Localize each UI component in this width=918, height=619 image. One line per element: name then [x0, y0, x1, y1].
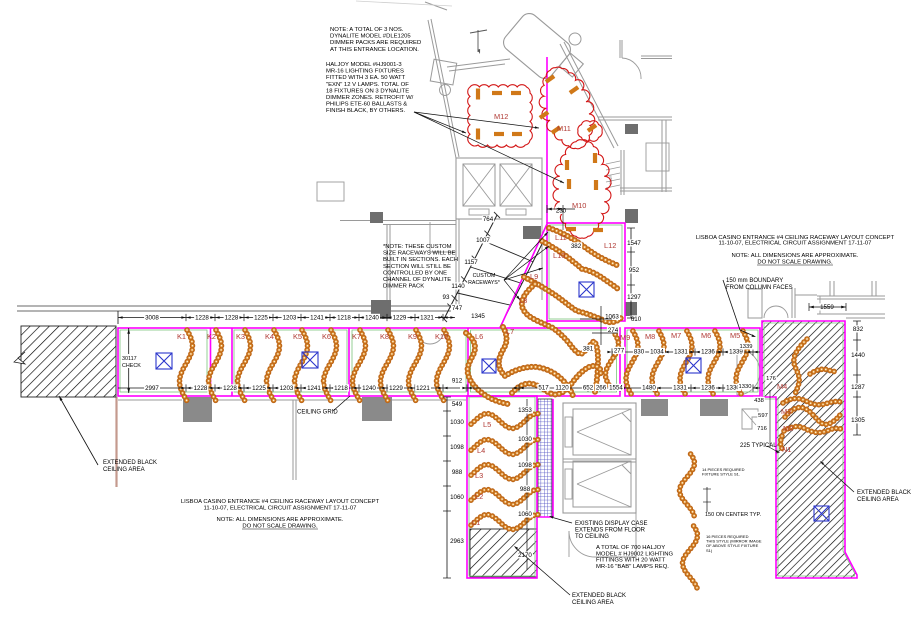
svg-text:PHILIPS ETE-60 BALLASTS &: PHILIPS ETE-60 BALLASTS &	[326, 102, 407, 108]
svg-text:K6: K6	[322, 332, 331, 341]
svg-text:1339: 1339	[740, 344, 753, 350]
svg-text:1236: 1236	[701, 349, 715, 356]
svg-text:1241: 1241	[310, 315, 324, 322]
svg-text:716: 716	[757, 426, 767, 432]
svg-text:2170: 2170	[518, 552, 532, 559]
svg-text:M11: M11	[557, 124, 571, 133]
svg-text:NOTE: ALL DIMENSIONS ARE APPRO: NOTE: ALL DIMENSIONS ARE APPROXIMATE.	[731, 253, 858, 259]
svg-text:952: 952	[629, 267, 640, 274]
svg-text:1236: 1236	[701, 385, 715, 392]
svg-text:1547: 1547	[627, 240, 641, 247]
svg-text:1554: 1554	[609, 385, 623, 392]
svg-text:912: 912	[452, 378, 463, 385]
svg-text:CEILING AREA: CEILING AREA	[572, 600, 614, 606]
svg-text:CHANNEL OF DYNALITE: CHANNEL OF DYNALITE	[383, 277, 451, 283]
svg-text:1228: 1228	[195, 315, 209, 322]
svg-text:DIMMER ZONES. RETROFIT W/: DIMMER ZONES. RETROFIT W/	[326, 95, 414, 101]
svg-text:517: 517	[538, 385, 549, 392]
svg-text:K2: K2	[207, 332, 216, 341]
svg-text:11-10-07, ELECTRICAL CIRCUIT A: 11-10-07, ELECTRICAL CIRCUIT ASSIGNMENT …	[719, 241, 872, 247]
svg-text:1229: 1229	[389, 385, 403, 392]
svg-text:1228: 1228	[225, 315, 239, 322]
svg-text:DIMMER PACKS ARE REQUIRED: DIMMER PACKS ARE REQUIRED	[330, 40, 421, 46]
svg-text:CHECK: CHECK	[122, 363, 141, 369]
svg-text:1221: 1221	[416, 385, 430, 392]
svg-text:1060: 1060	[518, 511, 532, 518]
svg-text:1305: 1305	[851, 417, 865, 424]
svg-text:150 mm BOUNDARY: 150 mm BOUNDARY	[726, 278, 783, 284]
svg-text:18 FIXTURES ON 3 DYNALITE: 18 FIXTURES ON 3 DYNALITE	[326, 88, 409, 94]
svg-text:RACEWAYS*: RACEWAYS*	[468, 280, 500, 286]
svg-text:1229: 1229	[393, 315, 407, 322]
svg-text:M4: M4	[777, 382, 787, 391]
svg-text:1030: 1030	[518, 436, 532, 443]
svg-text:1241: 1241	[307, 385, 321, 392]
svg-text:150 ON CENTER TYP.: 150 ON CENTER TYP.	[705, 512, 762, 518]
svg-text:K5: K5	[293, 332, 302, 341]
svg-text:1228: 1228	[223, 385, 237, 392]
svg-text:L8: L8	[519, 296, 527, 305]
svg-text:EXTENDED BLACK: EXTENDED BLACK	[572, 593, 626, 599]
svg-text:K10: K10	[435, 332, 448, 341]
svg-text:1440: 1440	[851, 352, 865, 359]
svg-text:M8: M8	[645, 332, 655, 341]
svg-text:1063: 1063	[605, 314, 619, 321]
svg-text:EXTENDS FROM FLOOR: EXTENDS FROM FLOOR	[575, 528, 646, 534]
svg-text:1218: 1218	[337, 315, 351, 322]
svg-text:1225: 1225	[252, 385, 266, 392]
svg-text:NOTE: ALL DIMENSIONS ARE APPRO: NOTE: ALL DIMENSIONS ARE APPROXIMATE.	[216, 517, 343, 523]
svg-text:438: 438	[754, 398, 764, 404]
svg-text:M6: M6	[701, 331, 711, 340]
svg-text:1157: 1157	[464, 259, 478, 266]
svg-text:652: 652	[583, 385, 594, 392]
svg-text:381: 381	[583, 346, 594, 353]
svg-text:M7: M7	[671, 331, 681, 340]
svg-text:1098: 1098	[450, 444, 464, 451]
svg-text:93: 93	[443, 294, 450, 301]
svg-text:EXTENDED BLACK: EXTENDED BLACK	[103, 460, 157, 466]
svg-text:K3: K3	[236, 332, 245, 341]
svg-text:K9: K9	[408, 332, 417, 341]
svg-text:764: 764	[483, 216, 494, 223]
svg-text:610: 610	[631, 316, 642, 323]
svg-text:"EXN" 12 V LAMPS. TOTAL OF: "EXN" 12 V LAMPS. TOTAL OF	[326, 82, 409, 88]
svg-text:MR-16 LIGHTING FIXTURES: MR-16 LIGHTING FIXTURES	[326, 69, 404, 75]
svg-text:M12: M12	[494, 112, 508, 121]
svg-text:M5: M5	[730, 331, 740, 340]
svg-text:1321: 1321	[420, 315, 434, 322]
svg-text:1345: 1345	[471, 313, 485, 320]
svg-text:1060: 1060	[450, 494, 464, 501]
svg-text:K1: K1	[177, 332, 186, 341]
svg-text:SIZE RACEWAYS WILL BE: SIZE RACEWAYS WILL BE	[383, 251, 456, 257]
svg-text:LISBOA CASINO ENTRANCE #4 CEIL: LISBOA CASINO ENTRANCE #4 CEILING RACEWA…	[181, 499, 380, 505]
svg-text:L4: L4	[477, 446, 485, 455]
svg-text:176: 176	[766, 376, 776, 382]
svg-text:MR-16 "BAB" LAMPS REQ.: MR-16 "BAB" LAMPS REQ.	[596, 564, 669, 570]
svg-text:MODEL # HJ9002 LIGHTING: MODEL # HJ9002 LIGHTING	[596, 551, 673, 557]
svg-text:A TOTAL OF 700 HALJOY: A TOTAL OF 700 HALJOY	[596, 545, 665, 551]
svg-text:K8: K8	[380, 332, 389, 341]
svg-text:988: 988	[520, 486, 531, 493]
svg-text:830: 830	[634, 349, 645, 356]
svg-text:1140: 1140	[451, 283, 465, 290]
svg-text:L11: L11	[555, 233, 567, 242]
svg-text:2997: 2997	[145, 385, 159, 392]
svg-text:L3: L3	[475, 471, 483, 480]
svg-text:1331: 1331	[674, 349, 688, 356]
svg-text:CEILING GRID: CEILING GRID	[297, 410, 338, 416]
svg-text:CUSTOM: CUSTOM	[473, 273, 496, 279]
svg-text:11-10-07, ELECTRICAL CIRCUIT A: 11-10-07, ELECTRICAL CIRCUIT ASSIGNMENT …	[204, 506, 357, 512]
svg-text:30117: 30117	[122, 356, 137, 362]
svg-text:L1: L1	[472, 518, 480, 527]
svg-text:L2: L2	[475, 492, 483, 501]
svg-text:1225: 1225	[254, 315, 268, 322]
svg-text:382: 382	[571, 243, 582, 250]
svg-text:N1: N1	[782, 445, 791, 454]
svg-text:FITTINGS WITH 20 WATT: FITTINGS WITH 20 WATT	[596, 558, 666, 564]
svg-text:L7: L7	[506, 327, 514, 336]
svg-text:EXISTING DISPLAY CASE: EXISTING DISPLAY CASE	[575, 521, 647, 527]
svg-text:FINISH BLACK, BY OTHERS.: FINISH BLACK, BY OTHERS.	[326, 108, 405, 114]
svg-text:CONTROLLED BY ONE: CONTROLLED BY ONE	[383, 270, 447, 276]
svg-text:1120: 1120	[555, 385, 569, 392]
svg-text:M10: M10	[572, 201, 586, 210]
svg-text:HALJOY MODEL #HJ9001-3: HALJOY MODEL #HJ9001-3	[326, 62, 402, 68]
svg-text:1240: 1240	[365, 315, 379, 322]
svg-text:597: 597	[758, 413, 768, 419]
svg-text:DO NOT SCALE DRAWING.: DO NOT SCALE DRAWING.	[757, 260, 833, 266]
svg-text:SECTION WILL STILL BE: SECTION WILL STILL BE	[383, 264, 451, 270]
svg-text:1030: 1030	[450, 419, 464, 426]
svg-text:988: 988	[452, 469, 463, 476]
svg-text:1007: 1007	[476, 237, 490, 244]
svg-text:DYNALITE MODEL #DLE1205: DYNALITE MODEL #DLE1205	[330, 34, 411, 40]
svg-text:DO NOT SCALE DRAWING.: DO NOT SCALE DRAWING.	[242, 524, 318, 530]
svg-text:1559: 1559	[820, 304, 834, 311]
svg-text:FIXTURE STYLE S1.: FIXTURE STYLE S1.	[702, 472, 740, 477]
svg-text:1353: 1353	[518, 407, 532, 414]
svg-text:M2: M2	[783, 424, 793, 433]
svg-text:*NOTE: THESE CUSTOM: *NOTE: THESE CUSTOM	[383, 244, 452, 250]
svg-text:747: 747	[452, 305, 463, 312]
svg-text:2963: 2963	[450, 538, 464, 545]
svg-text:L9: L9	[530, 272, 538, 281]
svg-text:CEILING AREA: CEILING AREA	[103, 467, 145, 473]
svg-text:S1): S1)	[706, 548, 713, 553]
svg-text:3008: 3008	[145, 315, 159, 322]
svg-text:1034: 1034	[650, 349, 664, 356]
svg-text:266: 266	[596, 385, 607, 392]
svg-text:1203: 1203	[280, 385, 294, 392]
svg-text:1203: 1203	[283, 315, 297, 322]
svg-text:1098: 1098	[518, 462, 532, 469]
svg-text:DIMMER PACK: DIMMER PACK	[383, 284, 424, 290]
svg-text:L12: L12	[604, 241, 616, 250]
svg-text:549: 549	[452, 401, 463, 408]
svg-text:277: 277	[614, 348, 625, 355]
svg-text:1218: 1218	[334, 385, 348, 392]
svg-text:BUILT IN SECTIONS. EACH: BUILT IN SECTIONS. EACH	[383, 257, 458, 263]
svg-text:AT THIS ENTRANCE LOCATION.: AT THIS ENTRANCE LOCATION.	[330, 47, 419, 53]
svg-text:1240: 1240	[362, 385, 376, 392]
svg-text:1228: 1228	[194, 385, 208, 392]
svg-text:OF ABOVE STYLE FIXTURE: OF ABOVE STYLE FIXTURE	[706, 543, 759, 548]
svg-text:FITTED WITH 3 EA. 50 WATT: FITTED WITH 3 EA. 50 WATT	[326, 75, 406, 81]
svg-text:1287: 1287	[851, 384, 865, 391]
svg-text:TO CEILING: TO CEILING	[575, 534, 609, 540]
svg-text:K4: K4	[265, 332, 274, 341]
svg-text:CEILING AREA: CEILING AREA	[857, 497, 899, 503]
svg-text:1297: 1297	[627, 294, 641, 301]
svg-text:L10: L10	[553, 251, 565, 260]
svg-text:832: 832	[853, 326, 864, 333]
svg-text:FROM COLUMN FACES: FROM COLUMN FACES	[726, 285, 793, 291]
svg-text:1331: 1331	[673, 385, 687, 392]
svg-text:225 TYPICAL: 225 TYPICAL	[740, 443, 777, 449]
svg-text:K7: K7	[352, 332, 361, 341]
svg-text:1330: 1330	[739, 384, 752, 390]
svg-text:L6: L6	[475, 332, 483, 341]
svg-text:EXTENDED BLACK: EXTENDED BLACK	[857, 490, 911, 496]
svg-text:M3: M3	[781, 407, 791, 416]
svg-text:M9: M9	[620, 333, 630, 342]
svg-text:1480: 1480	[642, 385, 656, 392]
svg-text:NOTE: A TOTAL OF 3 NOS.: NOTE: A TOTAL OF 3 NOS.	[330, 27, 404, 33]
svg-text:L5: L5	[483, 420, 491, 429]
